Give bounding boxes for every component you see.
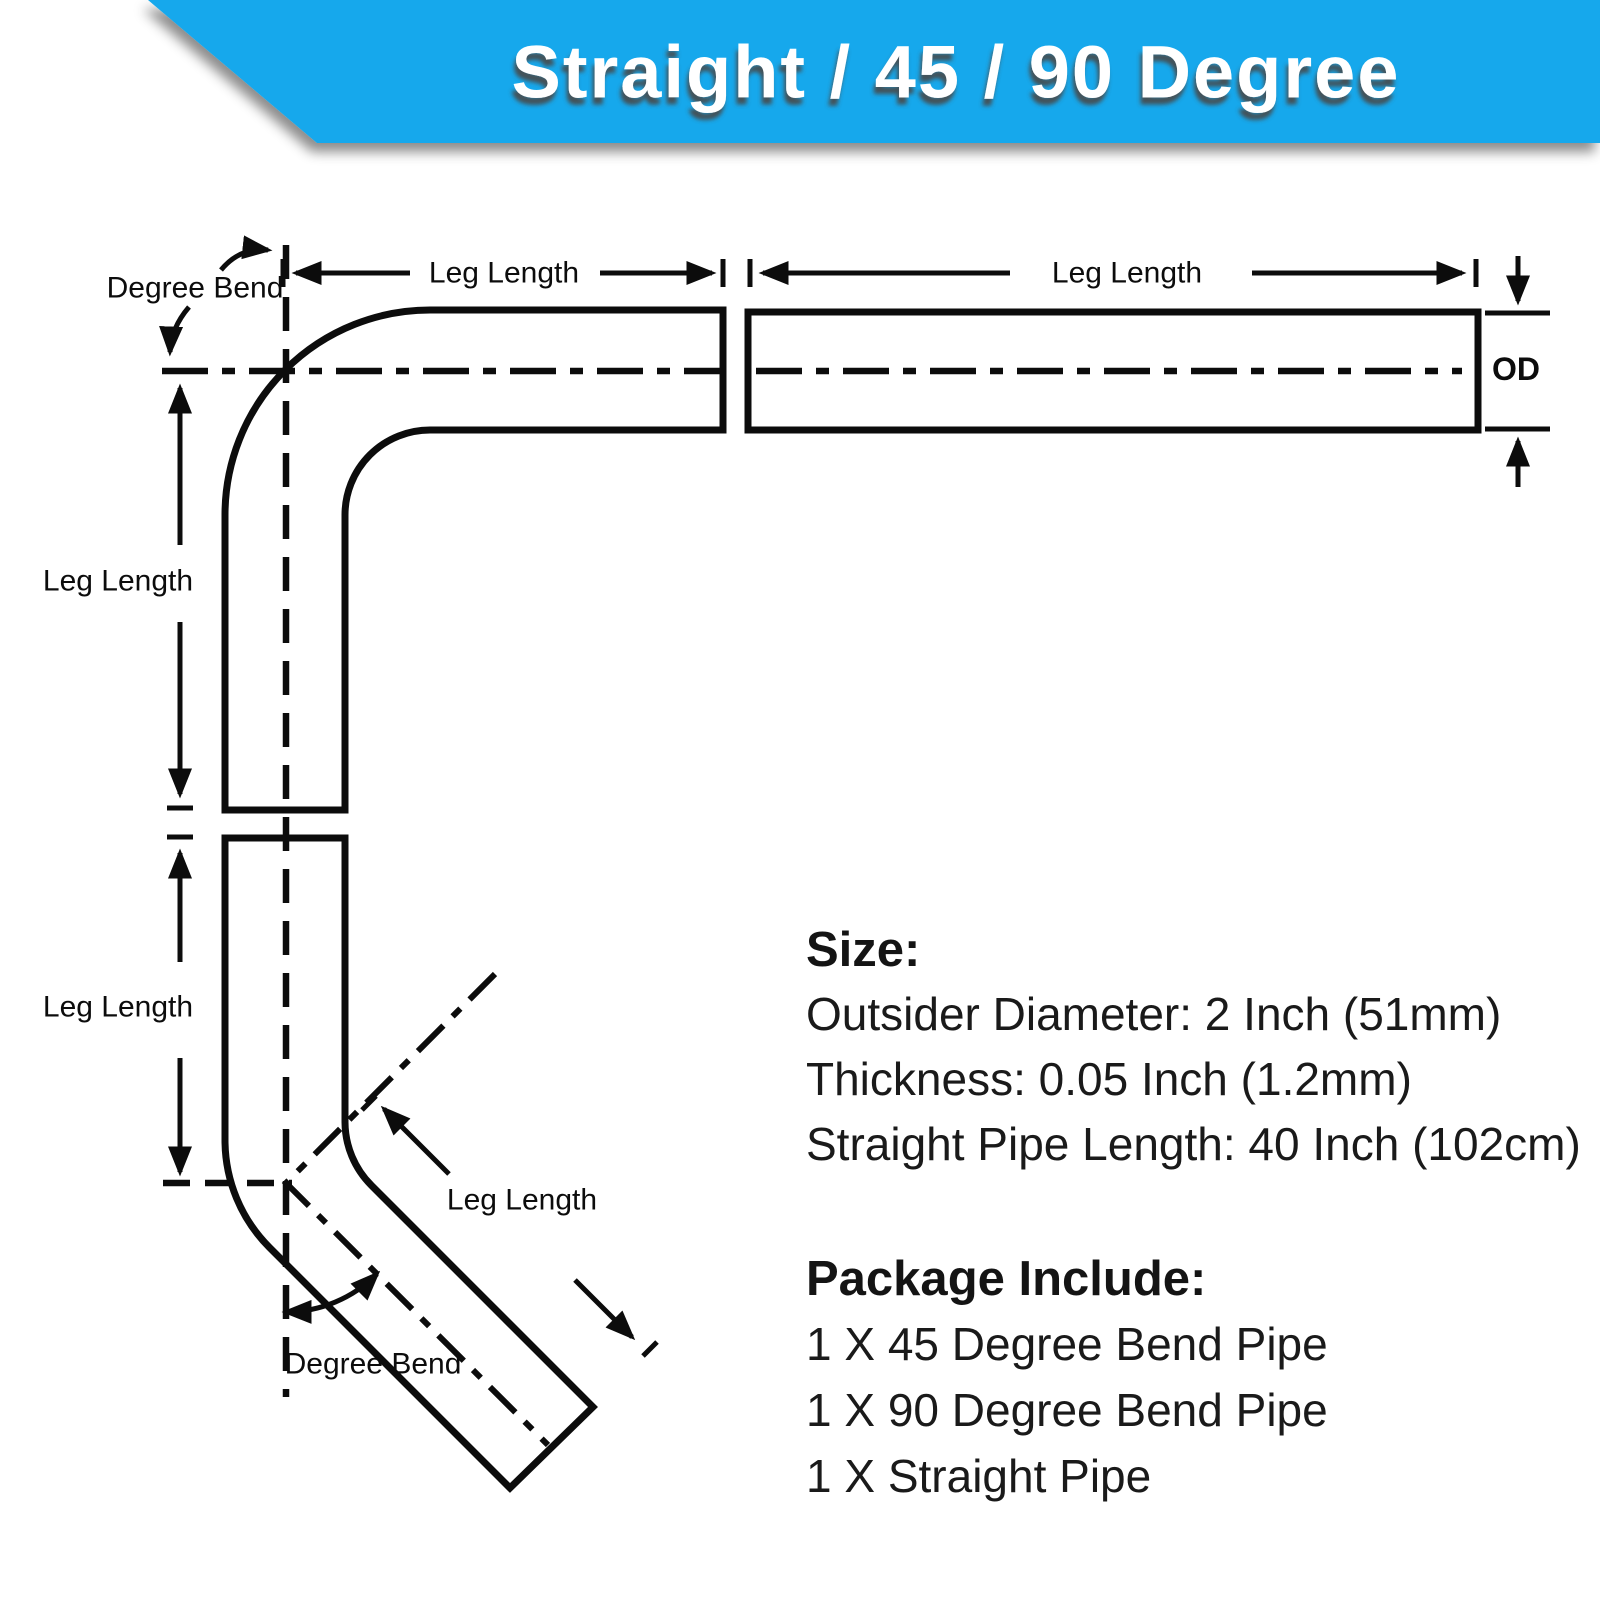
package-item-90: 1 X 90 Degree Bend Pipe: [806, 1384, 1328, 1436]
product-diagram-page: Straight / 45 / 90 Degree Leg Length Leg…: [0, 0, 1600, 1600]
degree-bend-top-arrow-to-centerline: [170, 307, 189, 352]
pipe-45-degree-outline: [225, 838, 593, 1488]
size-line-thickness: Thickness: 0.05 Inch (1.2mm): [806, 1053, 1412, 1105]
pipe-90-degree-outline: [225, 310, 723, 810]
label-leg-length-side-45: Leg Length: [43, 991, 193, 1024]
label-leg-length-side-90: Leg Length: [43, 565, 193, 598]
label-leg-length-top-left: Leg Length: [429, 257, 579, 290]
diagram-canvas: Straight / 45 / 90 Degree Leg Length Leg…: [0, 0, 1600, 1600]
size-line-outer-diameter: Outsider Diameter: 2 Inch (51mm): [806, 988, 1501, 1040]
package-heading: Package Include:: [806, 1252, 1206, 1306]
label-degree-bend-bottom: Degree Bend: [285, 1348, 462, 1381]
label-leg-length-diagonal: Leg Length: [447, 1184, 597, 1217]
banner-title: Straight / 45 / 90 Degree: [511, 31, 1400, 114]
label-leg-length-top-right: Leg Length: [1052, 257, 1202, 290]
dim-diagonal-arrow-upleft: [384, 1109, 449, 1174]
dim-diagonal-arrow-downright: [575, 1280, 632, 1337]
degree-bend-top-arrow-to-axis: [221, 250, 268, 270]
label-od: OD: [1492, 351, 1540, 387]
label-degree-bend-top: Degree Bend: [107, 272, 284, 305]
package-item-straight: 1 X Straight Pipe: [806, 1450, 1151, 1502]
size-heading: Size:: [806, 923, 920, 977]
size-line-straight-length: Straight Pipe Length: 40 Inch (102cm): [806, 1118, 1581, 1170]
package-item-45: 1 X 45 Degree Bend Pipe: [806, 1318, 1328, 1370]
dim-diagonal-tick-lower: [643, 1342, 657, 1356]
